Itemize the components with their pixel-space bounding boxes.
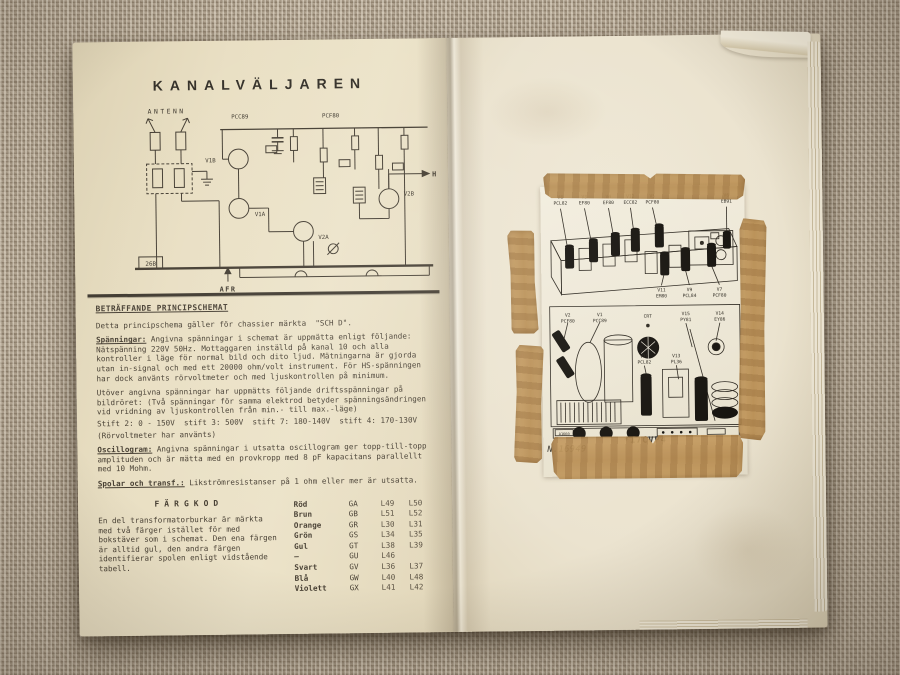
tube-label-type: PCL82 (553, 201, 567, 207)
tube-label-type: EM80 (656, 293, 667, 299)
tube-label-type: PCL82 (637, 360, 651, 366)
fargkod-coil-1: L38 (381, 540, 409, 551)
tube-label-type: PCF80 (713, 293, 727, 299)
fargkod-coil-2: L50 (409, 498, 437, 509)
notes-utover: Utöver angivna spänningar har uppmätts f… (97, 384, 439, 417)
fargkod-coil-2: L52 (409, 508, 437, 519)
fargkod-color-name: Gul (294, 541, 349, 552)
channel-selector-schematic: ANTENN PCC89 PCF80 V1B V1A V2A V2B HF AF… (119, 98, 437, 294)
fargkod-coil-1: L36 (381, 562, 409, 573)
fargkod-coil-2: L31 (409, 519, 437, 530)
tube-label-v: V15 (682, 311, 691, 317)
spanningar-text: Angivna spänningar i schemat är uppmätta… (96, 332, 426, 383)
schematic-label-pcf80: PCF80 (322, 113, 340, 119)
tube-label-type: EF80 (603, 200, 614, 206)
notes-spolar: Spolar och transf.: Likströmresistanser … (98, 475, 440, 489)
masking-tape-left-lower (514, 345, 544, 463)
tube-label-v: V9 (687, 287, 693, 293)
schematic-label-v1a: V1A (255, 212, 266, 218)
tube-label-v: V7 (717, 287, 723, 293)
page-stack-edges (807, 41, 827, 611)
fargkod-color-name: Violett (295, 583, 350, 594)
fargkod-coil-1: L30 (381, 519, 409, 530)
spolar-text: Likströmresistanser på 1 ohm eller mer ä… (185, 475, 418, 487)
notes-heading: BETRÄFFANDE PRINCIPSCHEMAT (96, 300, 438, 314)
tube-label-v: V13 (672, 353, 681, 359)
fargkod-color-name: Svart (294, 562, 349, 573)
right-page: V8 PCL82 V3 EF80 V4 EF80 V12 ECC82 V5 PC… (446, 33, 827, 632)
spolar-label: Spolar och transf.: (98, 478, 185, 488)
fargkod-note: En del transformatorburkar är märkta med… (98, 514, 280, 574)
fargkod-table: Röd GA L49 L50 Brun GB L51 L52 Orange GR… (294, 496, 442, 595)
notes-intro: Detta principschema gäller för chassier … (96, 317, 438, 331)
fargkod-coil-2: L42 (410, 582, 438, 593)
fargkod-code: GW (349, 573, 381, 584)
notes-oscillogram: Oscillogram: Angivna spänningar i utsatt… (97, 441, 439, 474)
paper-stain (487, 76, 608, 147)
fargkod-color-name: Orange (294, 520, 349, 531)
bottom-page-edges (639, 619, 807, 630)
schematic-label-v2a: V2A (318, 235, 329, 241)
tube-label-type: EB91 (721, 199, 732, 205)
tube-label-type: EF80 (579, 200, 590, 206)
fargkod-code: GT (349, 541, 381, 552)
fargkod-section: FÄRGKOD En del transformatorburkar är mä… (98, 496, 441, 598)
masking-tape-bottom (551, 431, 744, 482)
schematic-label-v2b: V2B (404, 191, 415, 197)
chassis-layout-diagram: V8 PCL82 V3 EF80 V4 EF80 V12 ECC82 V5 PC… (542, 188, 745, 438)
masking-tape-top (543, 172, 745, 199)
schematic-label-hf: HF (432, 170, 437, 178)
tube-label-v: V2 (565, 313, 571, 319)
fargkod-code: GA (349, 498, 381, 509)
open-booklet: KANALVÄLJAREN (72, 33, 827, 636)
fargkod-code: GB (349, 509, 381, 520)
masking-tape-left-upper (507, 230, 539, 335)
tube-label-type: EY86 (714, 317, 725, 323)
tube-label-v: V11 (657, 287, 666, 293)
fargkod-coil-1: L49 (381, 498, 409, 509)
taped-diagram-paper: V8 PCL82 V3 EF80 V4 EF80 V12 ECC82 V5 PC… (540, 184, 748, 476)
oscillogram-label: Oscillogram: (97, 445, 152, 455)
notes-spanningar: Spänningar: Angivna spänningar i schemat… (96, 331, 439, 383)
fargkod-code: GR (349, 520, 381, 531)
fargkod-coil-1: L46 (381, 551, 409, 562)
schematic-label-v1b: V1B (205, 158, 216, 164)
tube-label-type: PCC89 (593, 318, 607, 324)
tube-label-v: V14 (716, 311, 725, 317)
fargkod-coil-1: L40 (381, 572, 409, 583)
masking-tape-right (738, 218, 766, 440)
fargkod-color-name: Grön (294, 531, 349, 542)
schematic-label-pcc89: PCC89 (231, 114, 249, 120)
tube-label-type: ECC82 (623, 200, 637, 206)
crt-label: CRT (644, 314, 653, 320)
tube-label-type: PY81 (680, 317, 691, 323)
tube-label-type: PCF80 (561, 318, 575, 324)
fargkod-row: Violett GX L41 L42 (295, 582, 442, 594)
page-title: KANALVÄLJAREN (73, 74, 447, 95)
fargkod-coil-1: L51 (381, 509, 409, 520)
paper-stain (692, 504, 803, 595)
tube-label-type: PCF80 (645, 199, 659, 205)
fargkod-color-name: — (294, 552, 349, 563)
fargkod-color-name: Brun (294, 509, 349, 520)
schematic-label-antenn: ANTENN (148, 107, 186, 115)
tube-label-type: PCL84 (683, 293, 697, 299)
fargkod-code: GS (349, 530, 381, 541)
fargkod-coil-2 (409, 551, 437, 562)
fargkod-color-name: Blå (294, 573, 349, 584)
panel-code-label: A1660 (559, 432, 570, 436)
notes-text-block: BETRÄFFANDE PRINCIPSCHEMAT Detta princip… (96, 300, 442, 597)
spanningar-label: Spänningar: (96, 335, 146, 345)
fargkod-coil-1: L34 (381, 530, 409, 541)
fargkod-code: GV (349, 562, 381, 573)
fargkod-code: GU (349, 551, 381, 562)
fargkod-coil-2: L35 (409, 529, 437, 540)
fargkod-coil-2: L48 (409, 572, 437, 583)
tube-label-v: V10 (640, 354, 649, 360)
notes-rorvoltmeter: (Rörvoltmeter har använts) (97, 427, 439, 441)
tube-label-type: PL36 (671, 359, 682, 365)
tube-label-v: V1 (597, 312, 603, 318)
page-corner-curl (720, 30, 810, 57)
fargkod-coil-1: L41 (382, 583, 410, 594)
schematic-ref-box: 26B (145, 262, 156, 268)
photo-background-fabric: KANALVÄLJAREN (0, 0, 900, 675)
fargkod-note-column: FÄRGKOD En del transformatorburkar är mä… (98, 498, 281, 598)
fargkod-color-name: Röd (294, 499, 349, 510)
left-page: KANALVÄLJAREN (72, 38, 453, 637)
fargkod-heading: FÄRGKOD (98, 498, 280, 510)
fargkod-coil-2: L37 (409, 561, 437, 572)
fargkod-code: GX (350, 583, 382, 594)
fargkod-coil-2: L39 (409, 540, 437, 551)
